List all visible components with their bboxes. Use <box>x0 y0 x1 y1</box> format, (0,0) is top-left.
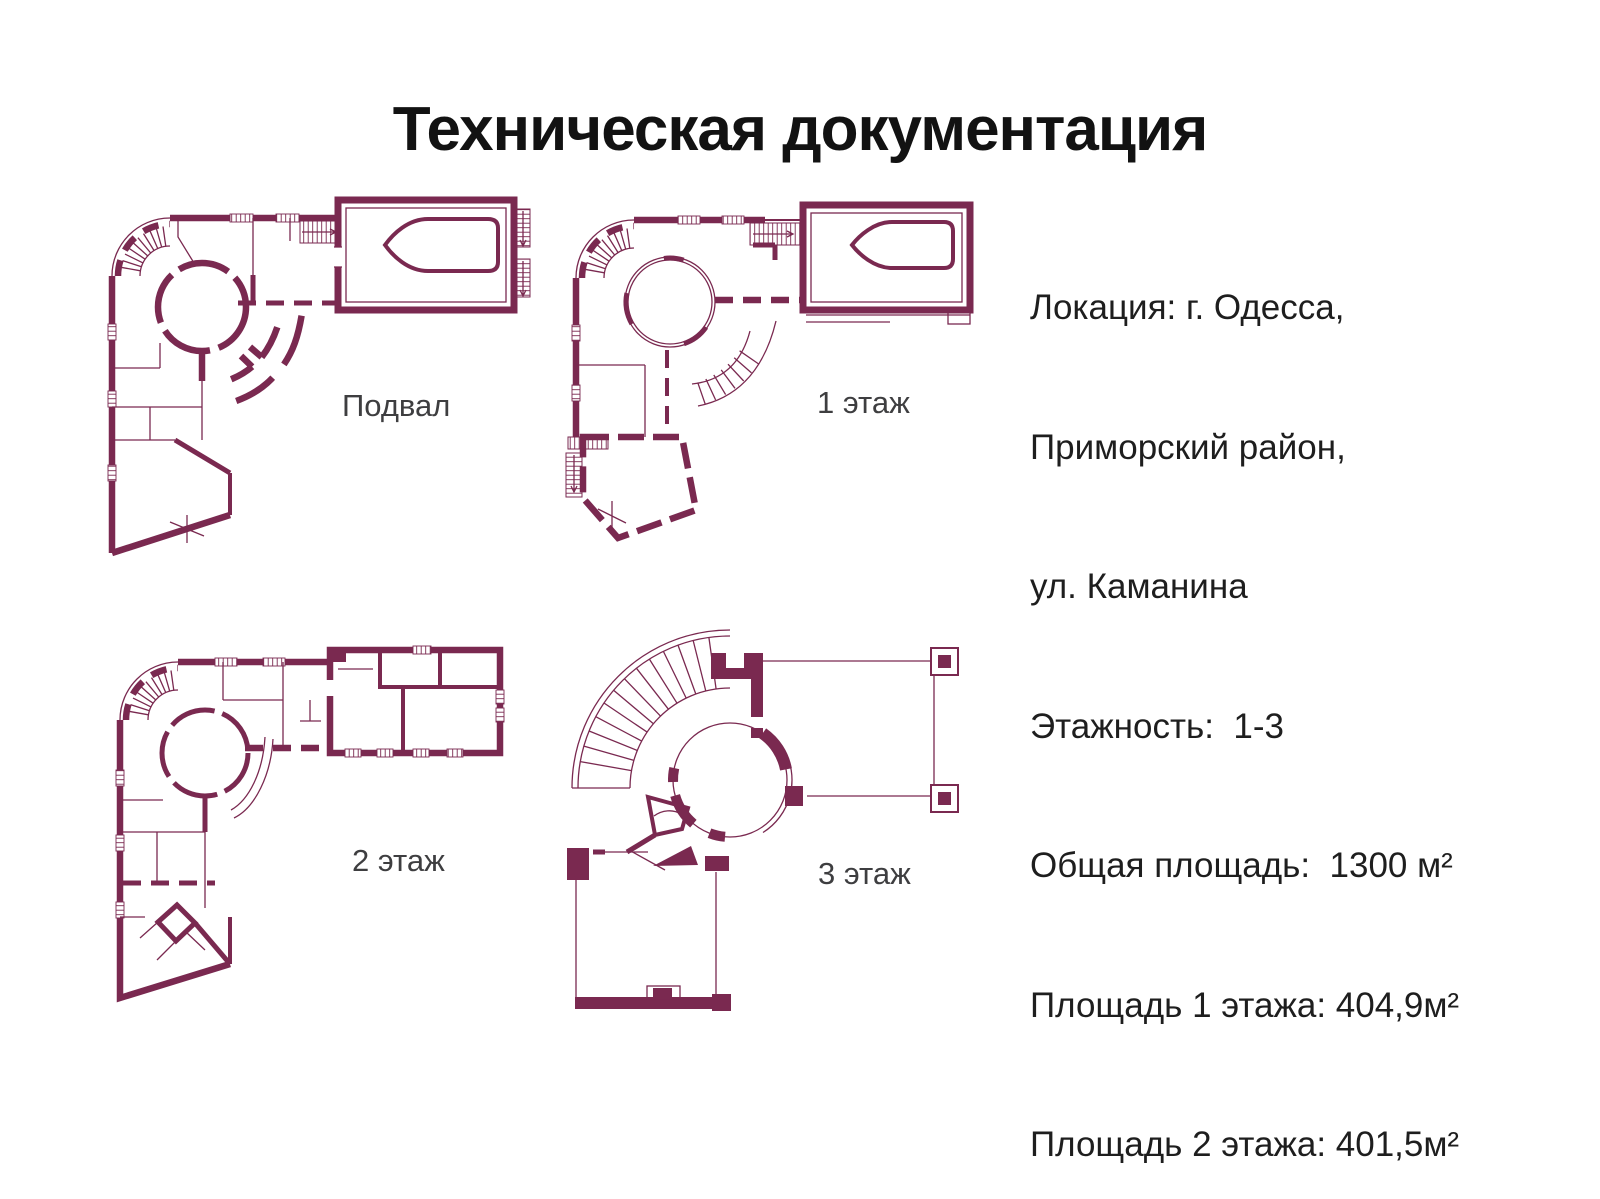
floor-plan-basement <box>108 200 531 553</box>
info-line-floors: Этажность: 1-3 <box>1030 704 1459 751</box>
exterior-stairs <box>516 209 530 297</box>
staircase <box>750 223 800 260</box>
floor-label-basement: Подвал <box>342 388 450 424</box>
pool <box>852 222 953 268</box>
spiral-stair-corner <box>576 220 634 278</box>
floor-label-floor1: 1 этаж <box>817 385 910 421</box>
staircase-lower-left <box>566 437 608 497</box>
fan-staircase <box>572 630 730 788</box>
info-line-area-floor1: Площадь 1 этажа: 404,9м² <box>1030 983 1459 1030</box>
circular-hall <box>609 241 732 364</box>
circular-hall <box>158 263 246 351</box>
floor-label-floor3: 3 этаж <box>818 856 911 892</box>
lower-room <box>583 437 696 538</box>
rotated-room <box>120 883 230 964</box>
pool-room <box>334 200 514 310</box>
technical-documentation-slide: Техническая документация <box>0 0 1600 1199</box>
floor-plan-floor1 <box>566 205 970 538</box>
curved-stair-corridor <box>692 321 776 406</box>
spiral-stair-corner <box>112 218 170 276</box>
info-line-district: Приморский район, <box>1030 425 1459 472</box>
info-line-street: ул. Каманина <box>1030 564 1459 611</box>
property-info: Локация: г. Одесса, Приморский район, ул… <box>1030 192 1459 1199</box>
pool <box>385 219 498 271</box>
info-line-location: Локация: г. Одесса, <box>1030 285 1459 332</box>
staircase <box>300 221 338 243</box>
right-wing-rooms <box>326 646 504 757</box>
floor-plan-floor3 <box>567 630 958 1011</box>
floor-label-floor2: 2 этаж <box>352 843 445 879</box>
pillar <box>567 848 589 880</box>
spiral-stair-corner <box>120 662 178 720</box>
floor-plan-floor2 <box>116 646 505 998</box>
circular-hall <box>162 710 248 796</box>
info-line-area-floor2: Площадь 2 этажа: 401,5м² <box>1030 1122 1459 1169</box>
circular-tower <box>645 695 814 871</box>
terrace <box>575 872 731 1011</box>
info-line-total-area: Общая площадь: 1300 м² <box>1030 843 1459 890</box>
entry-block <box>711 653 763 738</box>
pool-room <box>803 205 970 324</box>
